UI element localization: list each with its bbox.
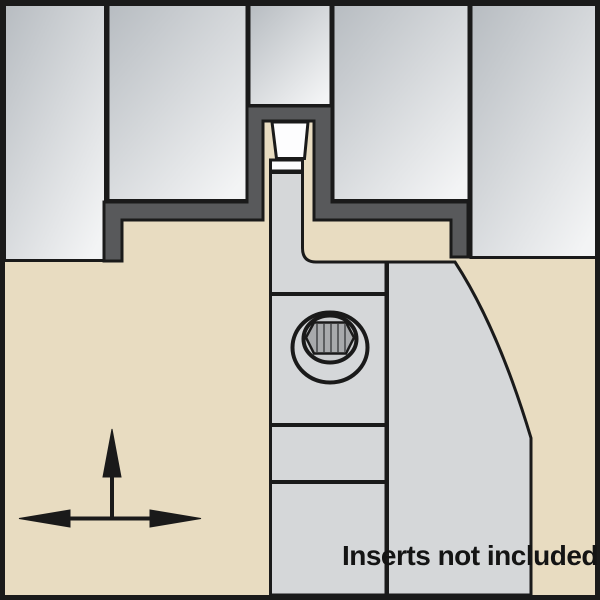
workpiece-block-4 — [333, 5, 469, 201]
workpiece-block-2 — [108, 5, 247, 201]
workpiece-block-1 — [5, 5, 106, 261]
torx-screw-icon — [293, 313, 368, 383]
workpiece-block-5 — [471, 5, 597, 258]
workpiece-block-3 — [249, 5, 331, 106]
grooving-insert — [272, 122, 308, 159]
inserts-note: Inserts not included — [342, 540, 598, 572]
tool-illustration: Inserts not included — [0, 0, 600, 600]
illustration-svg — [0, 0, 600, 600]
insert-clamp-seat — [271, 160, 303, 171]
